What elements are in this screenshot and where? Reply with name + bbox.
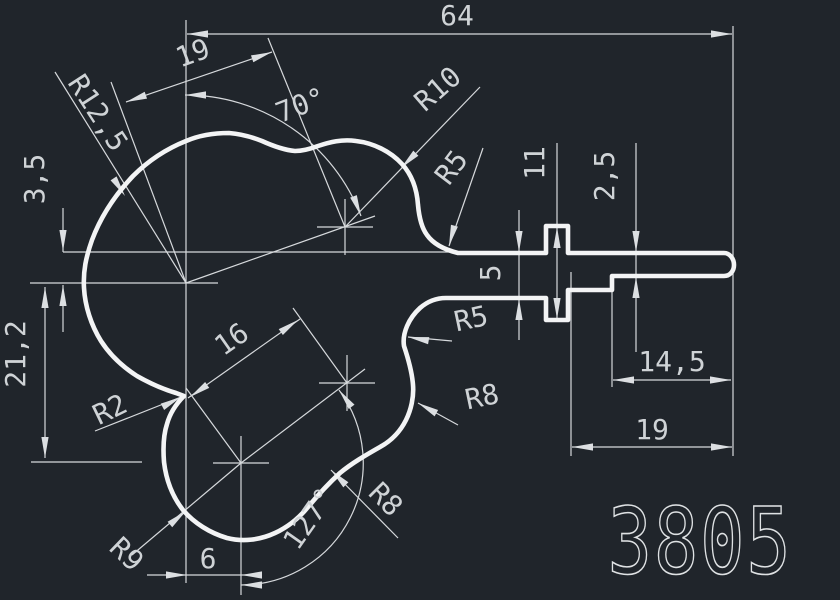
dim-label-5: 5: [474, 265, 507, 282]
dim-label-19-right: 19: [635, 413, 669, 446]
dim-label-r8-mid: R8: [462, 377, 502, 416]
dim-label-r5-top: R5: [428, 144, 475, 191]
dim-label-6: 6: [200, 542, 217, 575]
dim-label-r2: R2: [87, 387, 132, 431]
cad-viewport: 64 19 70° R12,5 R10 R5 11 2,5 5 3,5 21,2…: [0, 0, 840, 600]
dim-label-r12-5: R12,5: [61, 68, 135, 157]
dim-label-3-5: 3,5: [18, 154, 51, 205]
angle-arc-70: [185, 95, 361, 216]
dim-label-2-5: 2,5: [588, 151, 621, 202]
part-number: 3805: [608, 488, 793, 595]
drawing-canvas: 64 19 70° R12,5 R10 R5 11 2,5 5 3,5 21,2…: [0, 0, 840, 600]
dim-label-r8-low: R8: [362, 476, 409, 523]
dim-label-14-5: 14,5: [638, 345, 705, 378]
dim-label-21-2: 21,2: [0, 320, 32, 387]
dim-label-11: 11: [518, 146, 551, 180]
dim-label-r5-mid: R5: [451, 299, 491, 338]
dim-label-r9: R9: [103, 531, 150, 578]
dim-label-64: 64: [440, 0, 474, 32]
dim-label-19-top: 19: [171, 32, 214, 75]
dim-label-70deg: 70°: [271, 81, 330, 130]
